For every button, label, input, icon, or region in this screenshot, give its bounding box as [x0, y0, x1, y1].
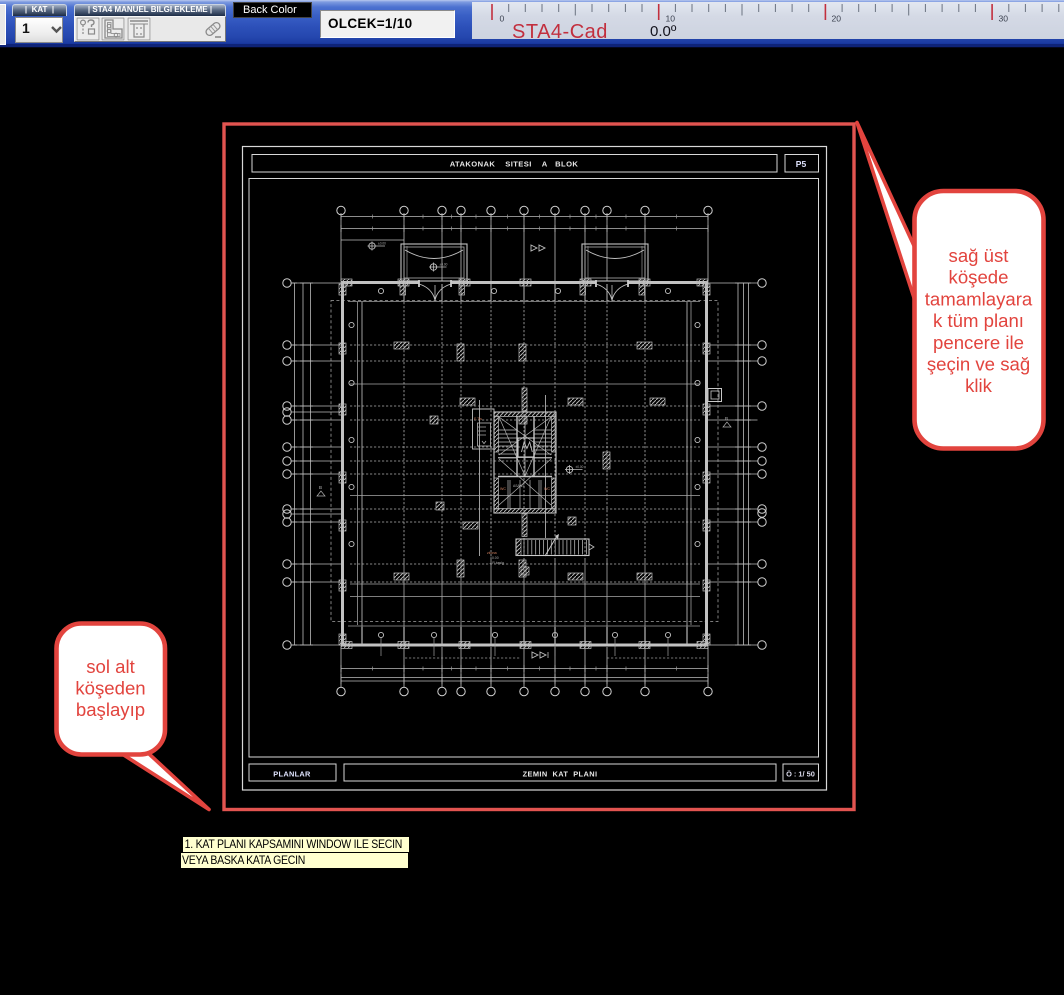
svg-text:10: 10 [666, 14, 676, 24]
svg-text:20: 20 [832, 14, 842, 24]
svg-text:ASANS: ASANS [513, 484, 525, 488]
svg-text:pencere ile: pencere ile [933, 332, 1024, 353]
svg-text:+0.00: +0.00 [490, 556, 499, 560]
svg-text:k tüm planı: k tüm planı [933, 310, 1024, 331]
svg-text:B: B [725, 416, 728, 421]
svg-text:klik: klik [965, 375, 993, 396]
svg-text:30: 30 [999, 14, 1009, 24]
svg-text:zkona: zkona [487, 551, 497, 555]
svg-text:±0.00: ±0.00 [576, 465, 584, 469]
svg-text:ZEMIN KAT PLANI: ZEMIN KAT PLANI [523, 770, 598, 779]
svg-text:sağ üst: sağ üst [949, 245, 1010, 266]
svg-text:Ö : 1/ 50: Ö : 1/ 50 [786, 770, 815, 779]
svg-text:P5: P5 [796, 159, 807, 169]
svg-text:±0.00: ±0.00 [378, 242, 386, 246]
svg-text:←R.baslg: ←R.baslg [489, 561, 504, 565]
svg-text:±0.00: ±0.00 [440, 263, 448, 267]
svg-text:köşeden: köşeden [75, 678, 145, 699]
svg-text:köşede: köşede [949, 267, 1009, 288]
svg-text:ATAKONAK SITESI A BLOK: ATAKONAK SITESI A BLOK [450, 160, 579, 169]
svg-text:0: 0 [500, 14, 505, 24]
svg-text:B: B [319, 485, 322, 490]
svg-text:E.Trs: E.Trs [474, 417, 482, 421]
svg-text:WC: WC [500, 487, 506, 491]
svg-text:sol alt: sol alt [86, 656, 135, 677]
svg-text:PLANLAR: PLANLAR [273, 770, 311, 779]
svg-text:şeçin ve sağ: şeçin ve sağ [927, 354, 1030, 375]
svg-text:WC: WC [544, 487, 550, 491]
svg-text:başlayıp: başlayıp [76, 699, 145, 720]
svg-text:tamamlayara: tamamlayara [925, 288, 1033, 309]
